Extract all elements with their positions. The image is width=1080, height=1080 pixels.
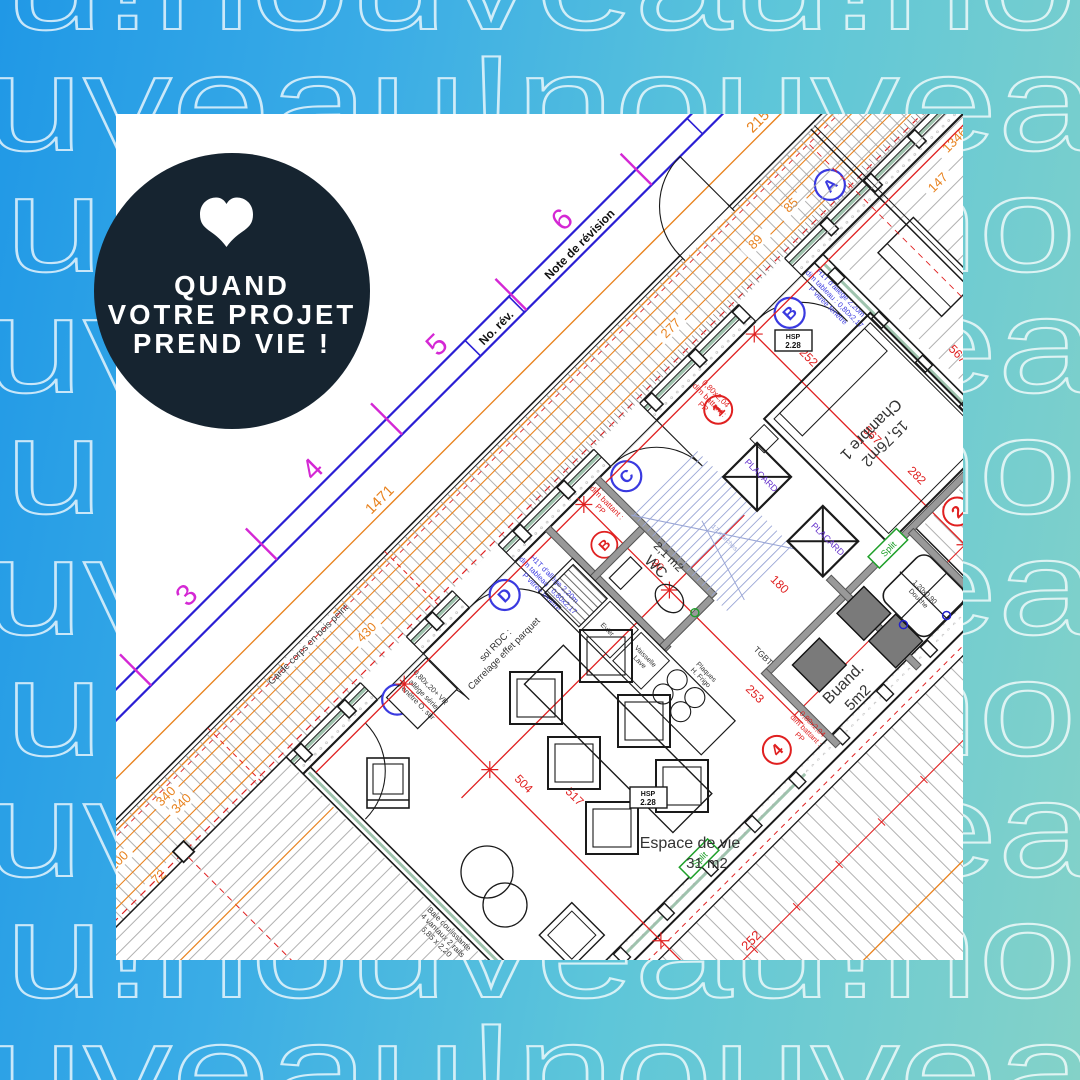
- svg-text:180: 180: [768, 572, 792, 596]
- svg-text:HSP: HSP: [786, 334, 801, 341]
- svg-text:PLACARD: PLACARD: [743, 457, 780, 494]
- svg-text:Carrelage effet parquet: Carrelage effet parquet: [466, 615, 543, 692]
- svg-text:253: 253: [743, 682, 767, 706]
- svg-text:Espace de vie: Espace de vie: [640, 835, 741, 852]
- svg-text:31 m2: 31 m2: [686, 855, 728, 872]
- svg-text:1471: 1471: [362, 482, 398, 518]
- svg-text:17 marches: 17 marches: [710, 524, 739, 553]
- svg-text:2.28: 2.28: [785, 341, 801, 350]
- svg-text:504: 504: [512, 772, 536, 796]
- svg-text:HSP: HSP: [641, 791, 656, 798]
- svg-text:PLACARD: PLACARD: [809, 521, 846, 558]
- svg-text:2.28: 2.28: [640, 798, 656, 807]
- svg-text:282: 282: [905, 463, 929, 487]
